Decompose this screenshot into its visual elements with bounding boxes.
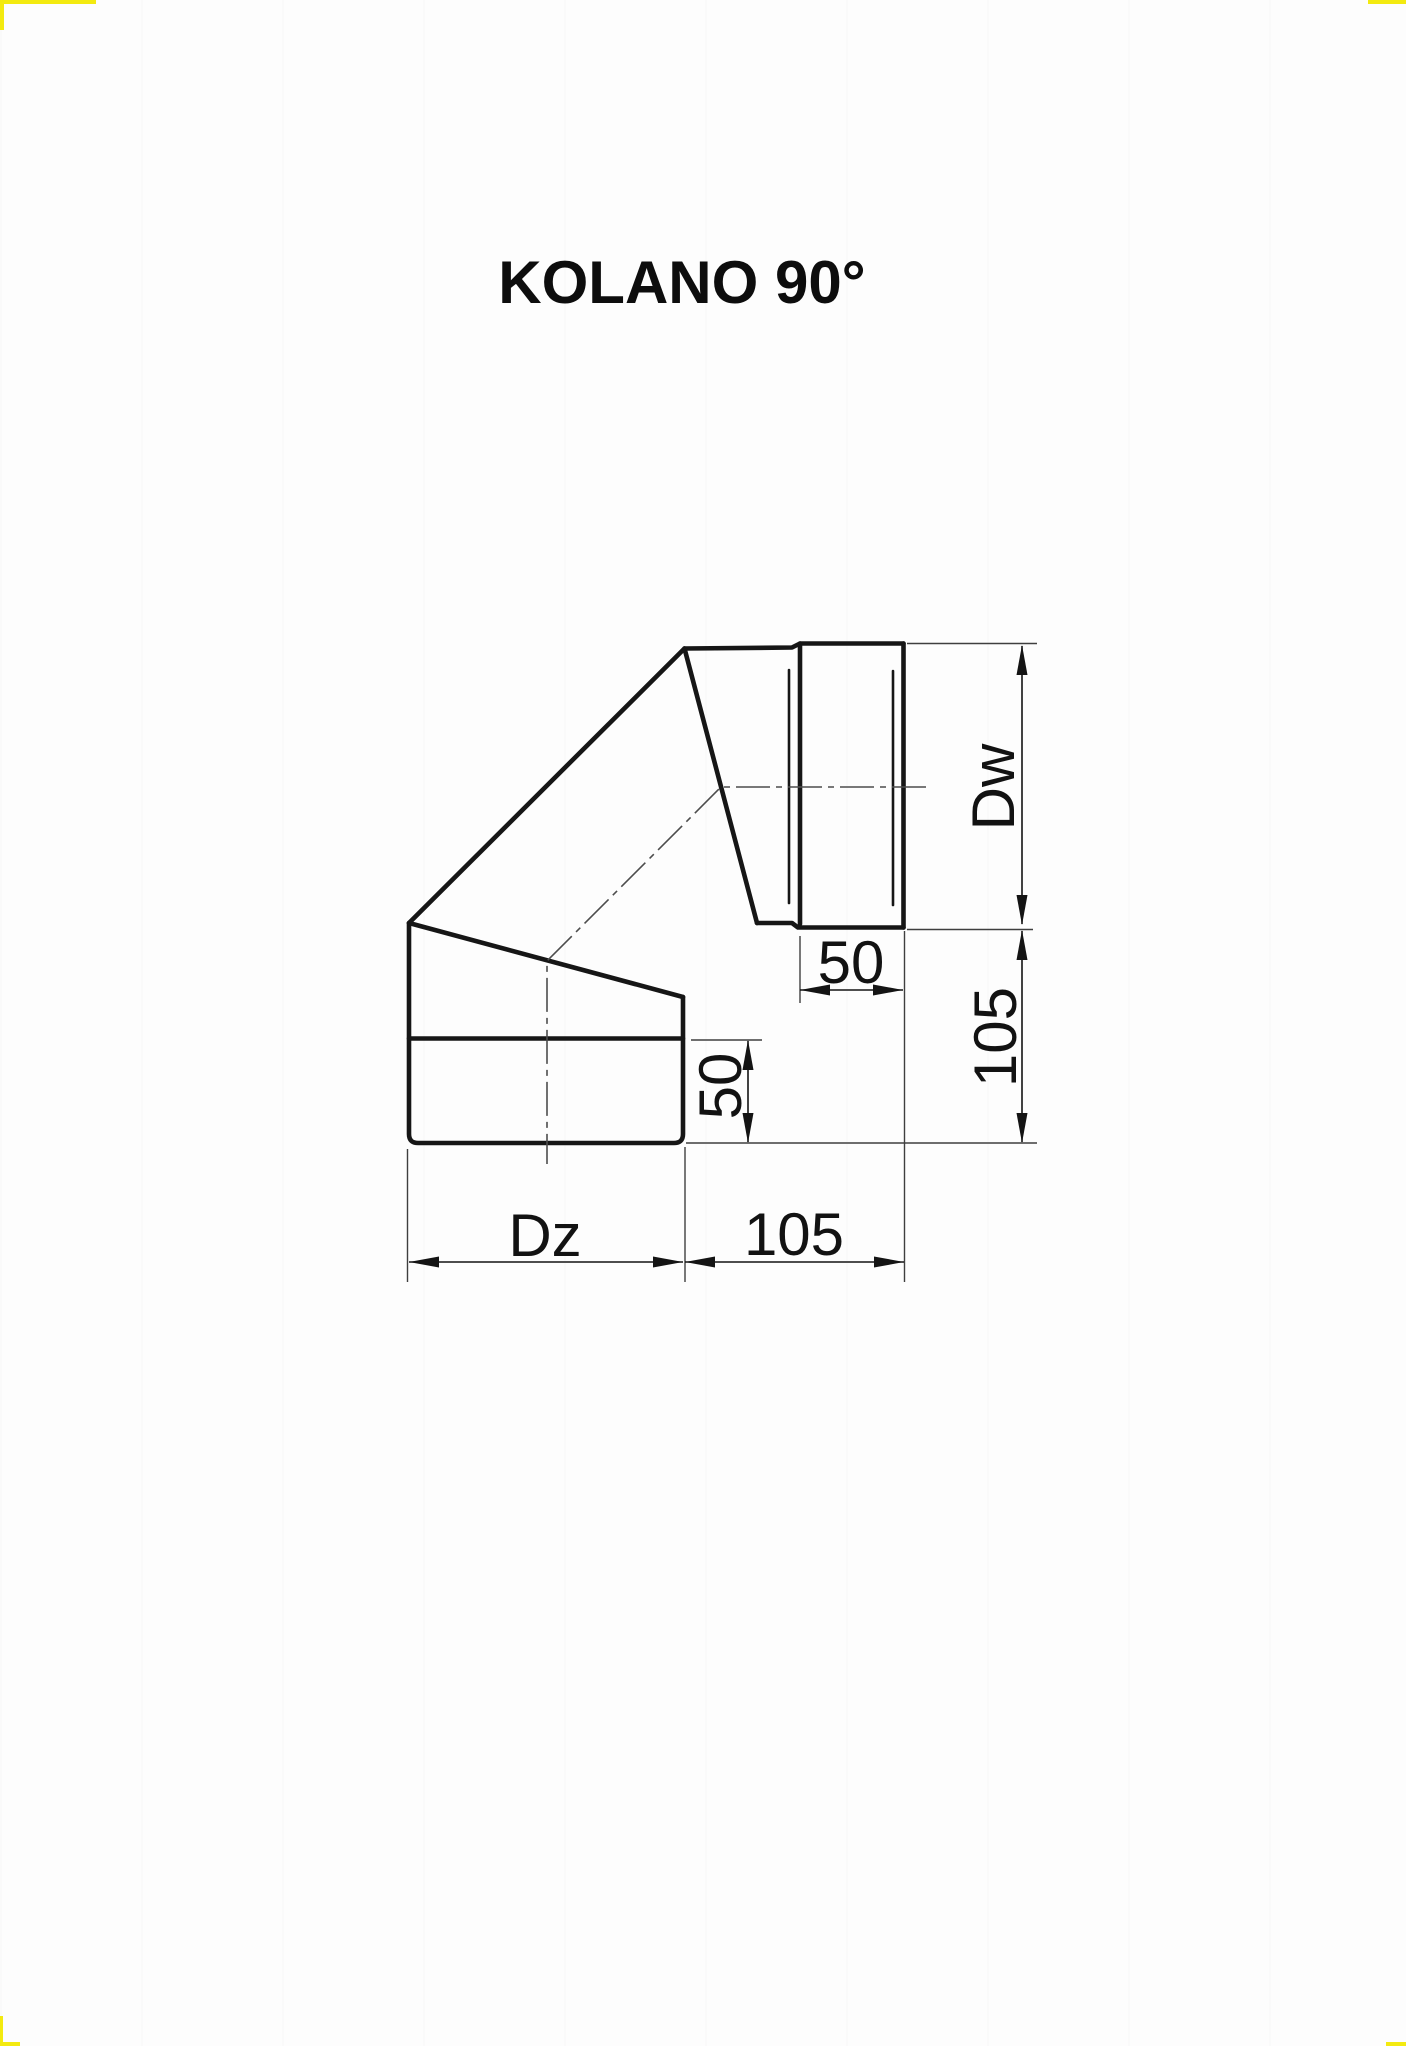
corner-mark-top-left-v (0, 0, 4, 30)
drawing-title: KOLANO 90° (498, 249, 865, 316)
bottom-105-arrow-right (874, 1257, 904, 1268)
top-edge (685, 644, 904, 649)
corner-mark-bottom-left-h (0, 2042, 20, 2046)
right-105-label: 105 (962, 987, 1029, 1087)
dz-arrow-left (409, 1257, 439, 1268)
document-page: KOLANO 90° (0, 0, 1406, 2046)
dw-label: Dw (960, 743, 1027, 830)
outer-diagonal-edge (409, 649, 685, 924)
dimension-socket-50: 50 (800, 929, 903, 996)
dimension-dw: Dw (960, 645, 1028, 925)
dw-arrow-up (1017, 645, 1028, 675)
right-105-arrow-up (1017, 930, 1028, 960)
dz-label: Dz (508, 1202, 581, 1269)
bottom-105-arrow-left (685, 1257, 715, 1268)
lower-50-label: 50 (687, 1053, 754, 1120)
corner-mark-bottom-left-v (0, 2016, 3, 2046)
dw-arrow-down (1017, 895, 1028, 925)
elbow-technical-drawing: KOLANO 90° (0, 0, 1406, 2046)
miter-seam-upper (685, 649, 758, 924)
extension-lines (408, 644, 1038, 1283)
corner-mark-top-left-h (0, 0, 96, 4)
corner-mark-bottom-right (1386, 2042, 1406, 2046)
corner-mark-top-right (1368, 0, 1406, 4)
dimension-bottom-105: 105 (685, 1201, 904, 1268)
bottom-pipe-outline (409, 923, 683, 1143)
socket-50-label: 50 (818, 929, 885, 996)
right-105-arrow-down (1017, 1113, 1028, 1143)
dz-arrow-right (653, 1257, 683, 1268)
miter-seam-lower (409, 923, 683, 997)
dimension-right-105: 105 (962, 930, 1029, 1143)
dimension-dz: Dz (409, 1202, 683, 1269)
pipe-bottom-edge (757, 923, 904, 928)
bottom-105-label: 105 (744, 1201, 844, 1268)
elbow-outline (409, 644, 904, 1144)
dimension-lower-50: 50 (687, 1040, 754, 1143)
